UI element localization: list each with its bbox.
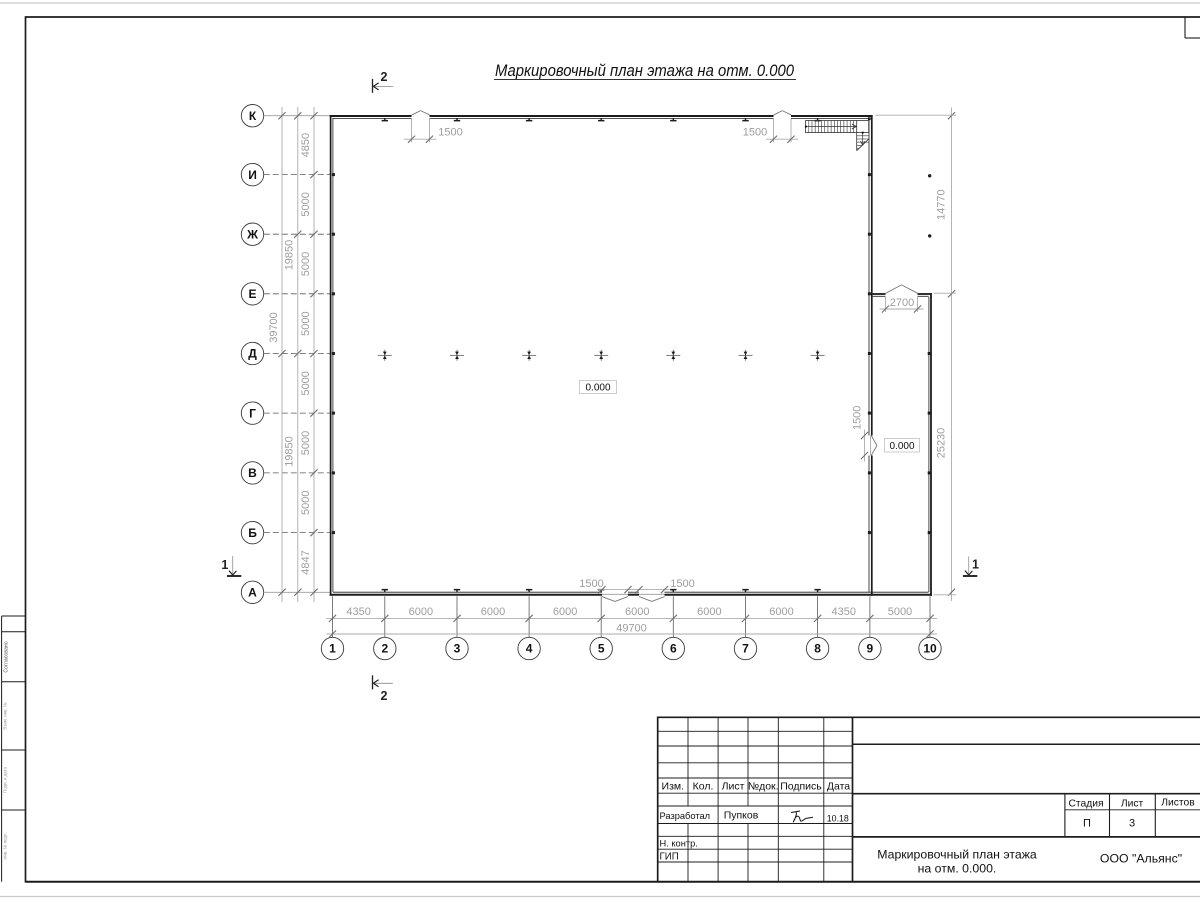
svg-text:39700: 39700 [268, 312, 280, 343]
svg-text:0.000: 0.000 [889, 441, 914, 452]
svg-text:Подпись: Подпись [780, 781, 822, 793]
svg-text:5000: 5000 [300, 192, 312, 216]
svg-text:6000: 6000 [697, 606, 721, 618]
svg-text:1500: 1500 [438, 127, 462, 139]
svg-text:6000: 6000 [409, 606, 433, 618]
svg-text:1: 1 [329, 642, 336, 656]
svg-text:П: П [1083, 818, 1091, 830]
svg-text:6000: 6000 [769, 606, 793, 618]
svg-text:№док.: №док. [748, 781, 779, 793]
svg-text:Подп. и дата: Подп. и дата [3, 767, 8, 793]
svg-text:6000: 6000 [553, 606, 577, 618]
svg-text:3: 3 [454, 642, 461, 656]
svg-text:Г: Г [249, 406, 256, 420]
svg-text:49700: 49700 [616, 622, 647, 634]
svg-text:Разработал: Разработал [660, 811, 711, 821]
svg-text:Стадия: Стадия [1068, 798, 1103, 809]
svg-text:Инв. № подл.: Инв. № подл. [3, 832, 8, 859]
svg-text:И: И [248, 168, 257, 182]
svg-text:К: К [249, 109, 257, 123]
svg-text:1500: 1500 [579, 578, 603, 590]
svg-text:Е: Е [248, 287, 256, 301]
svg-text:Листов: Листов [1161, 798, 1195, 809]
svg-text:6000: 6000 [481, 606, 505, 618]
svg-text:2700: 2700 [890, 297, 914, 309]
svg-text:2: 2 [381, 689, 388, 703]
svg-text:4847: 4847 [300, 550, 312, 574]
svg-text:4: 4 [526, 642, 533, 656]
svg-text:19850: 19850 [284, 436, 296, 467]
svg-text:25230: 25230 [936, 428, 948, 459]
svg-text:5000: 5000 [300, 491, 312, 515]
svg-text:5000: 5000 [300, 431, 312, 455]
svg-text:4850: 4850 [300, 133, 312, 157]
svg-text:4350: 4350 [346, 606, 370, 618]
svg-text:Лист: Лист [722, 781, 745, 793]
svg-text:Б: Б [248, 526, 257, 540]
svg-text:4350: 4350 [832, 606, 856, 618]
svg-text:1: 1 [221, 558, 228, 572]
svg-text:Ж: Ж [246, 227, 258, 241]
svg-text:Взам. инв. №: Взам. инв. № [3, 702, 8, 729]
svg-text:В: В [248, 466, 257, 480]
svg-text:19850: 19850 [284, 240, 296, 271]
svg-text:5000: 5000 [300, 252, 312, 276]
svg-text:Д: Д [248, 347, 257, 361]
svg-text:Маркировочный план этажа: Маркировочный план этажа [877, 847, 1037, 861]
svg-text:1: 1 [972, 558, 979, 572]
svg-text:2: 2 [381, 70, 388, 84]
svg-text:6: 6 [670, 642, 677, 656]
svg-text:Пупков: Пупков [724, 809, 759, 821]
svg-text:Н. контр.: Н. контр. [660, 839, 698, 849]
svg-text:5: 5 [598, 642, 605, 656]
svg-text:5000: 5000 [888, 606, 912, 618]
svg-text:Маркировочный план этажа на от: Маркировочный план этажа на отм. 0.000 [495, 61, 795, 80]
svg-text:Лист: Лист [1121, 799, 1144, 810]
svg-text:6000: 6000 [625, 606, 649, 618]
svg-text:10: 10 [923, 642, 937, 656]
svg-text:1500: 1500 [743, 127, 767, 139]
svg-text:на отм. 0.000.: на отм. 0.000. [918, 862, 997, 876]
svg-text:0.000: 0.000 [585, 383, 610, 394]
svg-text:10.18: 10.18 [827, 814, 849, 824]
svg-text:1500: 1500 [670, 578, 694, 590]
svg-text:Согласовано: Согласовано [4, 641, 10, 672]
svg-text:Изм.: Изм. [662, 781, 685, 793]
svg-text:5000: 5000 [300, 311, 312, 335]
svg-text:5000: 5000 [300, 371, 312, 395]
svg-text:7: 7 [742, 642, 749, 656]
svg-text:9: 9 [867, 642, 874, 656]
svg-text:А: А [248, 586, 257, 600]
svg-text:Дата: Дата [827, 781, 850, 793]
svg-text:Кол.: Кол. [693, 781, 714, 793]
svg-text:ГИП: ГИП [660, 852, 679, 863]
svg-text:1500: 1500 [851, 406, 863, 430]
svg-text:ООО "Альянс": ООО "Альянс" [1100, 852, 1182, 866]
svg-text:2: 2 [381, 642, 388, 656]
svg-text:3: 3 [1129, 818, 1135, 830]
svg-text:8: 8 [814, 642, 821, 656]
svg-text:14770: 14770 [936, 189, 948, 220]
